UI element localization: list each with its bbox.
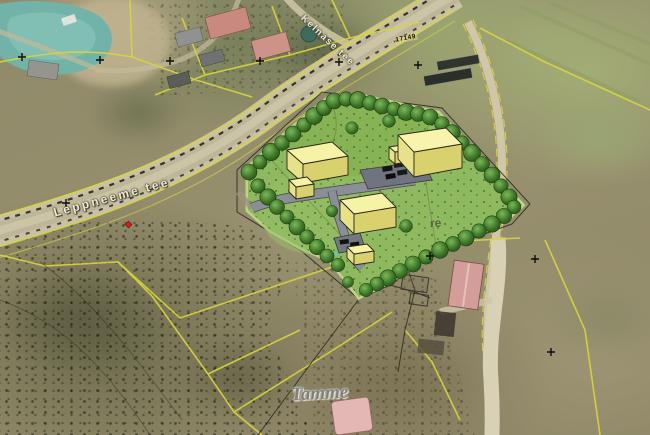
- tree-icon: [331, 258, 344, 271]
- pink-barn: [448, 260, 484, 310]
- map-graphics: [0, 0, 650, 435]
- red-roof-house: [205, 7, 251, 39]
- proposed-building-C: [340, 193, 396, 234]
- shed: [417, 339, 444, 356]
- tree-icon: [342, 276, 353, 287]
- survey-cross-icon: [531, 255, 539, 263]
- hydrant-dot-icon: [334, 252, 337, 255]
- tree-icon: [400, 220, 413, 233]
- survey-cross-icon: [547, 348, 555, 356]
- site-plan: [237, 92, 530, 299]
- barn-roof: [423, 68, 472, 86]
- round-pond: [301, 26, 317, 42]
- building-footprint: [331, 397, 373, 435]
- poi-marker-icon: [125, 221, 132, 228]
- tree-icon: [432, 242, 449, 259]
- tree-icon: [320, 249, 334, 263]
- survey-cross-icon: [414, 61, 422, 69]
- aerial-map-viewport[interactable]: Leppneeme tee Kelnase tee 17149 re Tamme: [0, 0, 650, 435]
- barn-roof: [437, 54, 480, 70]
- tree-icon: [346, 122, 358, 134]
- tree-icon: [359, 283, 372, 296]
- gray-roof-house: [199, 49, 225, 67]
- gray-roof-house: [175, 27, 204, 47]
- tree-icon: [383, 115, 396, 128]
- dark-roof-house: [167, 71, 191, 88]
- tree-icon: [326, 205, 338, 217]
- proposed-building-D: [347, 244, 374, 265]
- shed: [434, 311, 456, 337]
